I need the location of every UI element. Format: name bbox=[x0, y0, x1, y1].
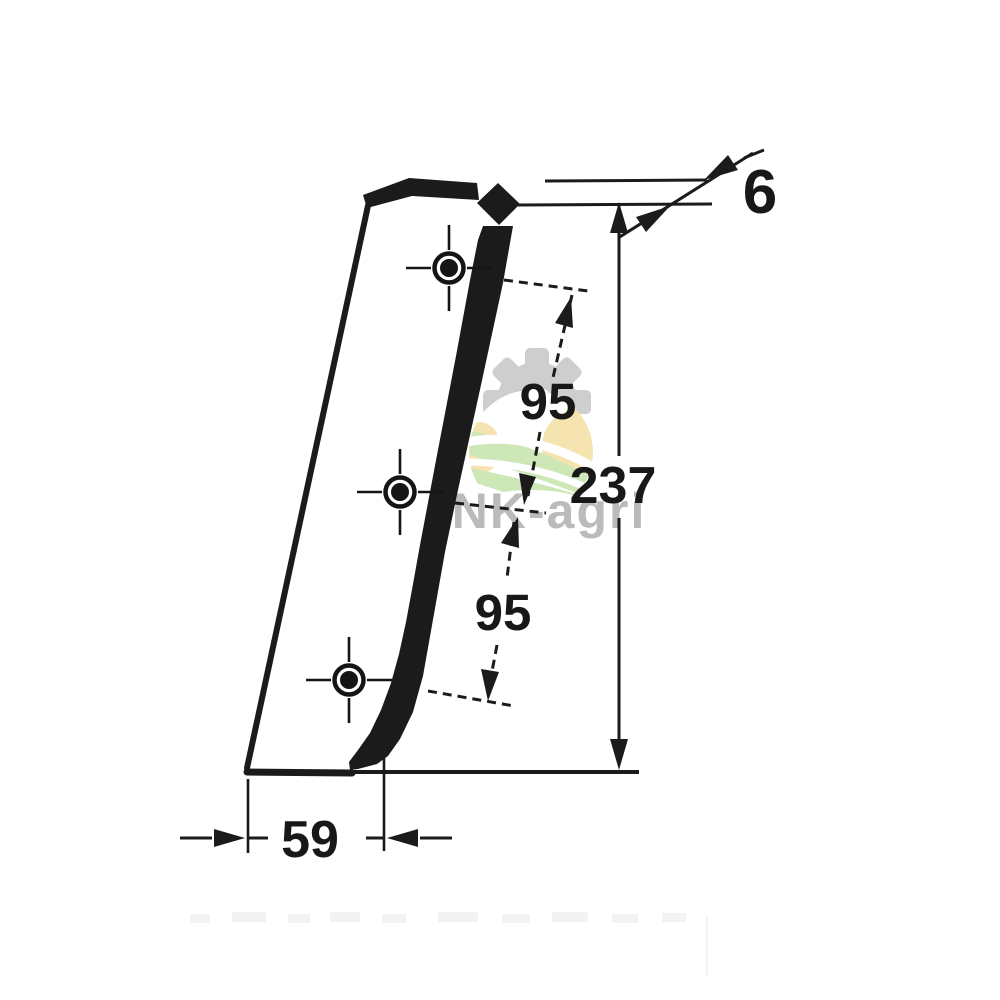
dim-thickness: 6 bbox=[518, 150, 777, 238]
arrowhead-right bbox=[214, 829, 245, 847]
scan-smudge bbox=[552, 912, 588, 922]
arrowhead-left bbox=[387, 829, 418, 847]
scan-smudge bbox=[502, 914, 530, 923]
dim-label-overall-height: 237 bbox=[570, 457, 657, 515]
drawing-canvas: UNK-agri 6 bbox=[0, 0, 1000, 1000]
scan-artifacts bbox=[190, 912, 708, 977]
arrowhead-upper bbox=[704, 155, 738, 180]
dim-thickness-line-upper bbox=[545, 180, 707, 181]
scan-smudge bbox=[330, 912, 360, 922]
scan-smudge bbox=[288, 914, 310, 923]
arrowhead-up bbox=[610, 202, 628, 233]
dim-thickness-line-lower bbox=[518, 204, 712, 205]
arrowhead-down-d bbox=[481, 669, 499, 701]
ref-line-hole-3 bbox=[428, 691, 514, 706]
dim-label-spacing-top: 95 bbox=[520, 373, 577, 430]
hole-center bbox=[391, 483, 409, 501]
technical-drawing: UNK-agri 6 bbox=[0, 0, 1000, 1000]
scan-smudge bbox=[438, 912, 478, 922]
scan-smudge bbox=[612, 914, 638, 923]
hole-center bbox=[340, 671, 358, 689]
arrowhead-up-a bbox=[555, 297, 573, 328]
hole-center bbox=[440, 259, 458, 277]
scan-smudge bbox=[382, 914, 406, 923]
scan-smudge bbox=[662, 913, 686, 922]
scan-smudge bbox=[190, 914, 210, 923]
scan-line bbox=[706, 915, 708, 977]
dim-label-spacing-bottom: 95 bbox=[475, 584, 532, 641]
arrowhead-down bbox=[610, 739, 628, 770]
dim-label-thickness: 6 bbox=[743, 158, 777, 227]
scan-smudge bbox=[232, 912, 266, 922]
dim-overall-height: 237 bbox=[570, 202, 657, 770]
dim-label-base-width: 59 bbox=[281, 811, 339, 869]
arrowhead-lower bbox=[636, 206, 670, 232]
ref-line-hole-1 bbox=[504, 280, 588, 291]
